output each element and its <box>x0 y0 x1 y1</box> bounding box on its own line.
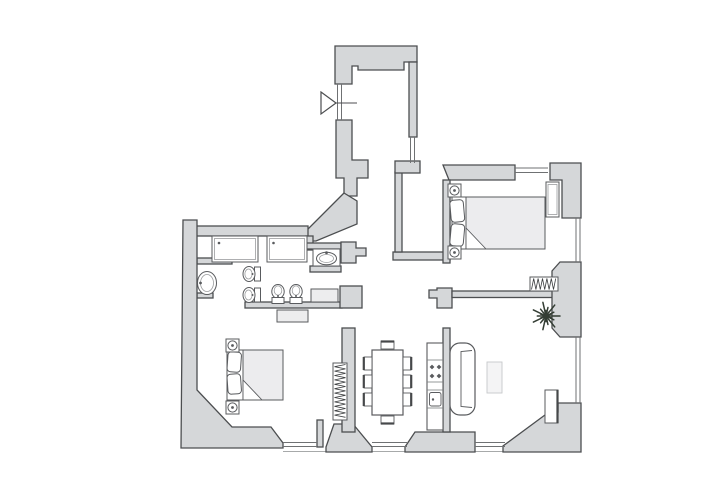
bathtub-1-drain <box>218 242 221 245</box>
bottom-wall-center-right <box>405 432 475 452</box>
entry-corridor-top-wall <box>335 46 417 84</box>
bedroom2-top-wall <box>443 165 515 180</box>
toilet-1-flush <box>252 273 254 275</box>
kitchen-sink <box>430 393 442 407</box>
chair <box>403 375 411 388</box>
bidet-1-faucet <box>252 294 254 296</box>
toilet-2-tank <box>272 298 284 304</box>
hall-wall-stub <box>429 288 452 308</box>
sink-niche-top-wall <box>306 243 341 249</box>
corridor-exit-wall <box>395 161 420 173</box>
light-shaft-left-wall <box>395 172 402 252</box>
lamp-dot <box>453 189 456 192</box>
floor-plan-drawing <box>0 0 707 500</box>
kitchen-sink-tap <box>432 398 434 400</box>
chair <box>364 357 372 370</box>
bottom-door-post <box>317 420 323 447</box>
kitchen-counter <box>427 343 443 430</box>
bathtub-1 <box>212 236 258 262</box>
bed-1-pillow <box>227 374 242 395</box>
bathrooms-top-wall <box>195 226 308 236</box>
dining-table <box>372 350 403 415</box>
sink-niche-bottom-wall <box>310 266 341 272</box>
bathroom2-door-jamb-upper <box>341 242 366 263</box>
chair <box>364 375 372 388</box>
light-shaft-bottom-wall <box>393 252 450 260</box>
bidet-2-tank <box>290 298 302 304</box>
entry-corridor-right-wall <box>409 62 417 137</box>
right-middle-wall <box>552 262 581 337</box>
chair <box>403 393 411 406</box>
entry-corridor-left-wall <box>336 120 368 196</box>
shower-tray <box>267 236 307 262</box>
hall-console <box>277 310 308 322</box>
washbasin-2-faucet <box>325 251 328 254</box>
lamp-dot <box>231 344 234 347</box>
chair <box>403 357 411 370</box>
washbasin-1-faucet <box>199 282 202 285</box>
rug <box>487 362 502 393</box>
entry-door-swing <box>321 92 336 114</box>
bottom-right-corner-wall <box>503 403 581 452</box>
sofa <box>450 343 475 415</box>
toilet-2-flush <box>277 295 279 297</box>
radiator-panel-living <box>545 390 558 423</box>
corridor-diagonal-wall <box>304 193 357 241</box>
plant-center <box>544 314 548 318</box>
bedroom2-hall-wall <box>452 291 554 298</box>
bed-1-pillow <box>227 352 242 373</box>
washing-machine <box>311 289 338 302</box>
chair <box>364 393 372 406</box>
lamp-dot <box>453 251 456 254</box>
bidet-2-faucet <box>295 295 297 297</box>
bed-2-pillow <box>450 199 465 222</box>
shower-drain <box>272 242 275 245</box>
floor-plan-page <box>0 0 707 500</box>
lamp-dot <box>231 406 234 409</box>
kitchen-partition-wall <box>443 328 450 432</box>
bathroom2-door-jamb-lower <box>340 286 362 308</box>
bed-2-pillow <box>450 223 465 246</box>
